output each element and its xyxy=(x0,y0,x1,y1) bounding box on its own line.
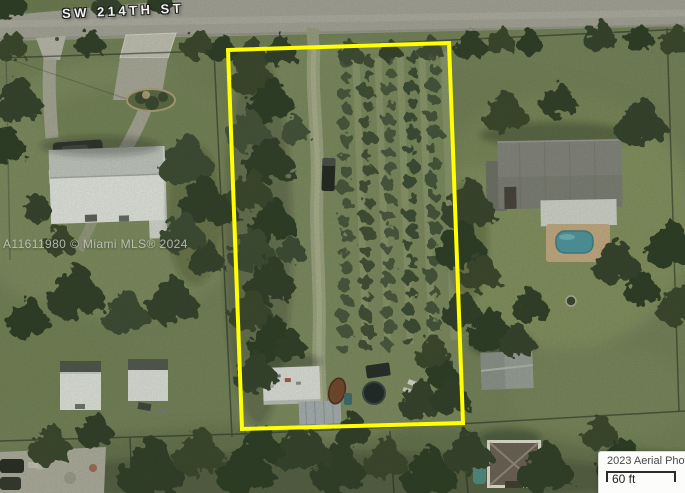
mls-watermark: A11611980 © Miami MLS® 2024 xyxy=(3,237,188,251)
aerial-map-viewport: SW 214TH ST A11611980 © Miami MLS® 2024 … xyxy=(0,0,685,493)
attribution-text: 2023 Aerial Photography xyxy=(607,455,685,467)
scale-box: 2023 Aerial Photography 60 ft xyxy=(598,451,685,493)
scale-label: 60 ft xyxy=(612,472,635,486)
